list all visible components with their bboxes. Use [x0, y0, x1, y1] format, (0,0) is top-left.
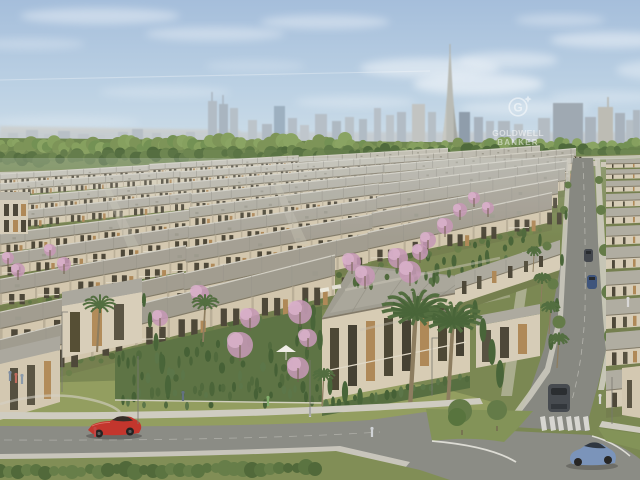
- svg-text:GOLDWELL: GOLDWELL: [492, 128, 544, 138]
- svg-text:G: G: [513, 101, 522, 115]
- svg-text:BANKER: BANKER: [497, 138, 538, 147]
